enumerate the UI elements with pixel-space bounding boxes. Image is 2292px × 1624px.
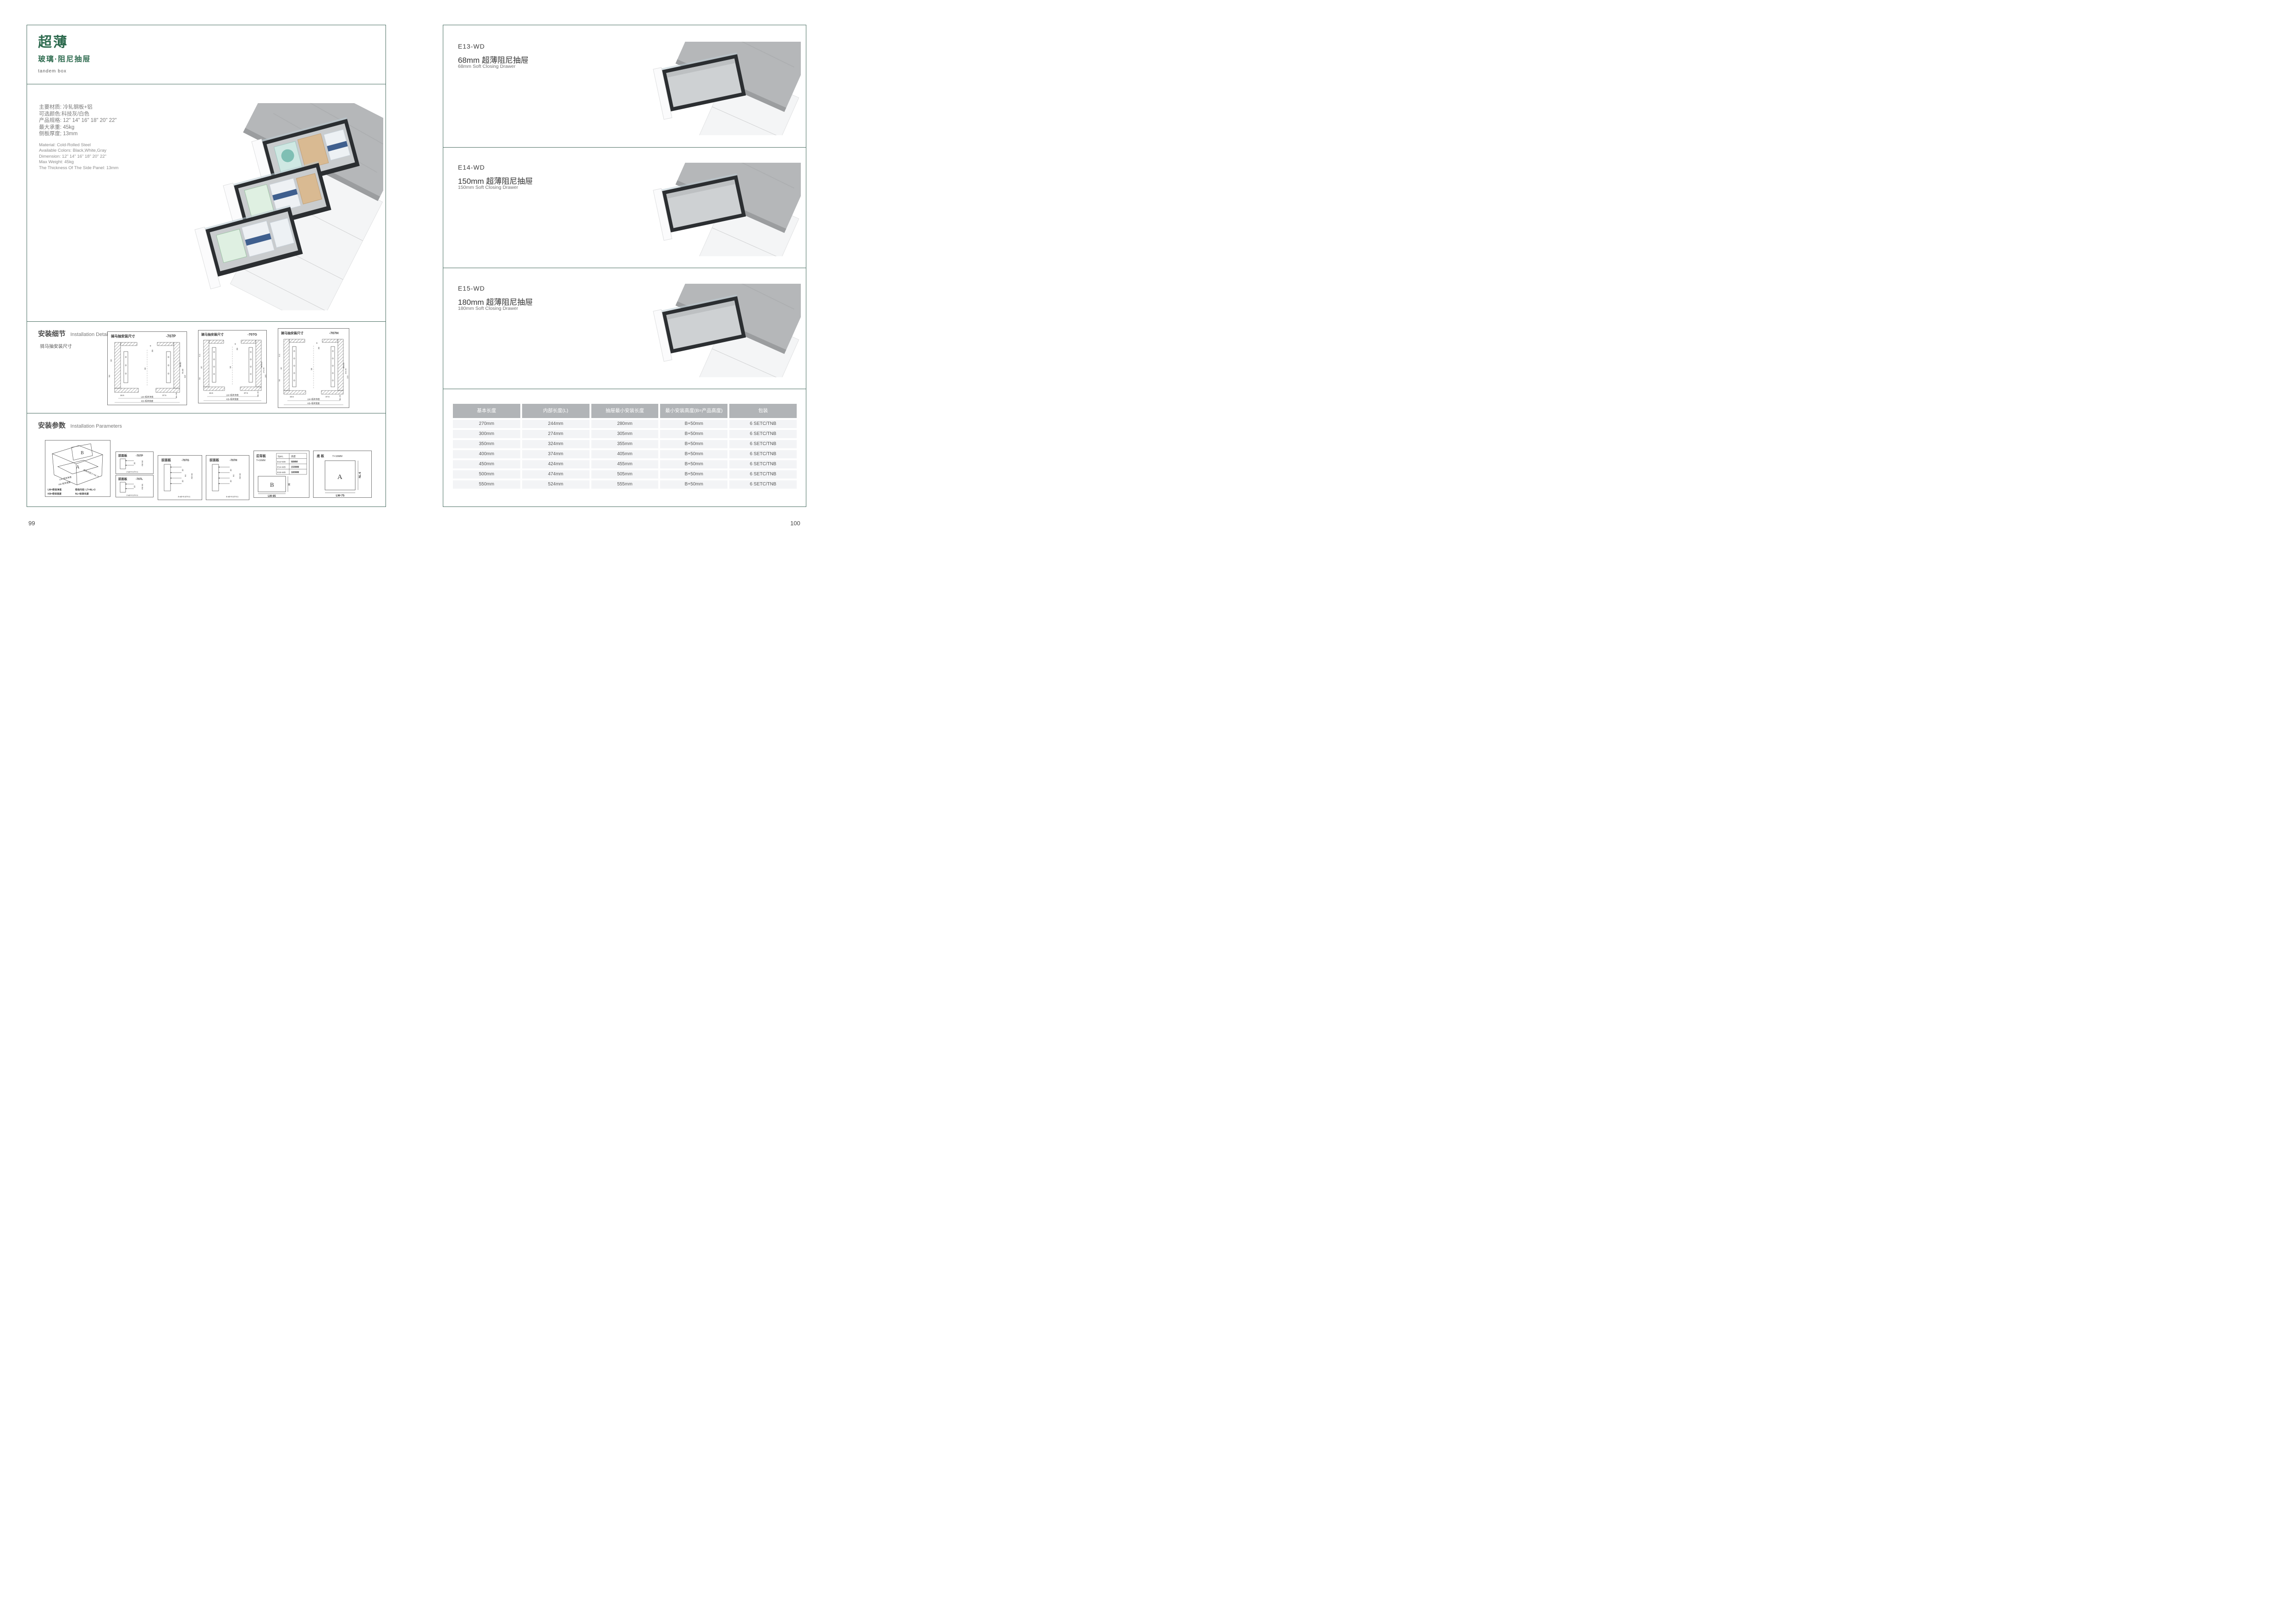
iso-legend: LW=柜体净宽	[48, 488, 61, 491]
dim-label: NL-6	[359, 472, 362, 478]
dim-label: Min 36	[257, 391, 259, 397]
dim-label: Min82	[179, 362, 182, 367]
table-cell: 350mm	[453, 440, 520, 448]
dim-label: 54	[108, 374, 110, 377]
divider	[27, 413, 386, 413]
dim-label: 54	[278, 379, 281, 381]
iso-legend: 柜体内空: LT=NL+3	[75, 488, 95, 491]
dim-label: 32	[133, 462, 136, 464]
dim-label: 16.5	[120, 394, 124, 396]
diagram-model: -707P	[166, 334, 176, 338]
dim-label: 32	[110, 359, 112, 362]
dim-label: LW=柜体净宽	[141, 396, 154, 399]
page-subtitle: 玻璃·阻尼抽屉	[38, 53, 91, 64]
dim-label: 54	[198, 377, 201, 380]
dim-label: 37.5	[325, 396, 330, 398]
hole-note: 4-ø2+0.2/-0.1	[226, 495, 239, 498]
details-heading-cn: 安装细节	[38, 330, 66, 338]
table-cell: B+50mm	[660, 420, 727, 428]
product-model-e14: E14-WD	[458, 164, 485, 171]
spec-cell: 180MM	[291, 471, 299, 474]
left-page: 超薄 玻璃·阻尼抽屉 tandem box 主要材质: 冷轧钢板+铝 可选颜色:…	[27, 25, 386, 507]
diagram-model: -707G	[248, 332, 257, 336]
column-header: 基本长度	[453, 404, 520, 418]
diagram-title: 骑马抽安装尺寸	[111, 334, 135, 338]
catalog-spread: 超薄 玻璃·阻尼抽屉 tandem box 主要材质: 冷轧钢板+铝 可选颜色:…	[0, 0, 830, 541]
dim-label: 64	[184, 474, 187, 477]
table-cell: B+50mm	[660, 430, 727, 438]
bottom-panel-diagram: 底 板 T=16MM A NL-6 LW-75	[313, 451, 372, 498]
front-panel-707h-diagram: 前面板 -707H 32 64 32 min 54 4-ø2+0.2/-0.1	[206, 455, 249, 500]
divider	[27, 84, 386, 84]
table-cell: 244mm	[522, 420, 590, 428]
table-cell: 455mm	[591, 460, 659, 468]
column-header: 抽屉最小安装长度	[591, 404, 659, 418]
specs-cn: 主要材质: 冷轧钢板+铝 可选颜色:科技灰/白色 产品规格: 12" 14" 1…	[39, 104, 117, 138]
table-cell: 400mm	[453, 450, 520, 458]
iso-legend: NL=标准长度	[75, 492, 89, 495]
divider	[443, 268, 806, 268]
dim-label: 6.4	[278, 354, 281, 357]
table-cell: 374mm	[522, 450, 590, 458]
dim-label: 32	[182, 469, 184, 471]
table-cell: 450mm	[453, 460, 520, 468]
dim-label: 16	[144, 367, 146, 370]
spec-cell: E13-WD	[277, 461, 286, 463]
dim-label: 16	[229, 366, 231, 369]
spec-line: Dimension: 12" 14" 16" 18" 20" 22"	[39, 154, 118, 160]
dim-label: 32	[200, 366, 203, 369]
dim-label: 37.5	[162, 394, 166, 396]
product-title-en: 180mm Soft Closing Drawer	[458, 306, 518, 311]
product-photo-drawers	[179, 103, 383, 310]
dim-label: 6.4	[198, 354, 201, 357]
dim-label: 20	[318, 347, 320, 349]
page-title: 超薄	[38, 31, 68, 51]
dim-label: min 54	[141, 460, 143, 466]
table-cell: 355mm	[591, 440, 659, 448]
table-cell: B+50mm	[660, 480, 727, 489]
table-cell: 6 SETC/TNB	[729, 420, 797, 428]
hole-note: 2-ø2+0.2/-0.1	[127, 494, 138, 496]
dim-label: 91.50	[182, 369, 184, 374]
dim-label: 32	[230, 480, 232, 482]
dim-label: Min 36	[339, 395, 341, 401]
page-number-left: 99	[28, 520, 35, 527]
hole-note: 2-ø2+0.2/-0.1	[127, 471, 138, 473]
params-heading-en: Installation Parameters	[70, 424, 122, 429]
front-panel-707l-diagram: 前面板 -707L 32 min 54 2-ø2+0.2/-0.1	[116, 475, 154, 497]
dim-label: 201.50	[345, 368, 347, 374]
table-cell: 300mm	[453, 430, 520, 438]
dim-label: KB=柜体宽度	[308, 402, 320, 405]
table-cell: 280mm	[591, 420, 659, 428]
spec-col-header: 高度	[291, 455, 296, 458]
dim-label: LW-75	[336, 494, 344, 497]
panel-model: -707G	[182, 459, 189, 462]
front-panel-707g-diagram: 前面板 -707G 32 64 32 min 54 4-ø2+0.2/-0.1	[158, 455, 202, 500]
table-cell: B+50mm	[660, 460, 727, 468]
spec-line: 最大承重: 45kg	[39, 124, 117, 131]
panel-title: 前面板	[118, 477, 127, 481]
back-panel-diagram: 后背板 T=16MM Spec. 高度 E13-WD 68MM E14-WD 1…	[253, 451, 309, 498]
diagram-title: 骑马抽安装尺寸	[281, 331, 303, 335]
spec-cell: 68MM	[291, 461, 298, 463]
table-cell: 405mm	[591, 450, 659, 458]
table-cell: 6 SETC/TNB	[729, 480, 797, 489]
product-photo-e13	[636, 42, 801, 135]
product-photo-e14	[636, 163, 801, 256]
column-header: 内部长度(L)	[522, 404, 590, 418]
table-cell: 6 SETC/TNB	[729, 450, 797, 458]
dim-label: 64	[232, 474, 235, 477]
table-cell: 500mm	[453, 470, 520, 479]
product-model-e13: E13-WD	[458, 43, 485, 50]
dim-label: min 54	[141, 484, 143, 490]
dim-label: LW-85	[268, 495, 276, 498]
dim-label: 113	[184, 375, 186, 378]
table-cell: 305mm	[591, 430, 659, 438]
installation-diagram-707p: 骑马抽安装尺寸 -707P 16 9 20 32 54 16.5 37.5 Mi…	[107, 331, 187, 405]
spec-line: Max Weight: 45kg	[39, 160, 118, 165]
dim-label: KB=柜体宽度	[226, 398, 239, 401]
table-cell: 424mm	[522, 460, 590, 468]
dim-label: Min192	[342, 362, 345, 369]
panel-title: 前面板	[209, 458, 220, 462]
dim-label: 37.5	[244, 392, 248, 394]
diagram-title: 骑马抽安装尺寸	[201, 332, 224, 336]
spec-line: 侧板厚度; 13mm	[39, 131, 117, 138]
dim-label: 16.5	[209, 392, 213, 394]
table-cell: 550mm	[453, 480, 520, 489]
column-header: 最小安装高度(B=产品高度)	[660, 404, 727, 418]
product-model-e15: E15-WD	[458, 285, 485, 292]
front-panel-707p-diagram: 前面板 -707P 32 min 54 2-ø2+0.2/-0.1	[116, 451, 154, 474]
spec-line: The Thickness Of The Side Panel: 13mm	[39, 165, 118, 171]
panel-letter: B	[270, 481, 274, 488]
table-cell: B+50mm	[660, 470, 727, 479]
panel-model: -707P	[136, 455, 143, 457]
spec-cell: 150MM	[291, 466, 299, 469]
table-cell: B+50mm	[660, 440, 727, 448]
panel-title: 前面板	[161, 458, 171, 462]
spec-table-header: 基本长度 内部长度(L) 抽屉最小安装长度 最小安装高度(B=产品高度) 包装	[453, 404, 797, 418]
dim-label: 32	[182, 480, 184, 482]
panel-letter-b: B	[81, 451, 84, 456]
params-iso-diagram: B A LW=柜体净宽 KB=柜体宽度 柜体内空LT=NL+3 LW=柜体净宽 …	[45, 440, 110, 497]
table-cell: 524mm	[522, 480, 590, 489]
table-cell: 6 SETC/TNB	[729, 470, 797, 479]
product-title-en: 68mm Soft Closing Drawer	[458, 64, 515, 69]
table-cell: 270mm	[453, 420, 520, 428]
details-subheading: 骑马抽安装尺寸	[40, 342, 72, 349]
dim-label: min 54	[239, 473, 241, 479]
spec-cell: E14-WD	[277, 466, 286, 469]
dim-label: LW=柜体净宽	[307, 398, 320, 401]
dim-label: Min162	[260, 361, 263, 368]
product-title-en: 150mm Soft Closing Drawer	[458, 185, 518, 190]
spec-cell: E15-WD	[277, 471, 286, 474]
table-cell: 324mm	[522, 440, 590, 448]
panel-title: 前面板	[118, 453, 127, 457]
panel-model: -707H	[230, 459, 237, 462]
panel-letter-a: A	[76, 465, 80, 470]
table-cell: 505mm	[591, 470, 659, 479]
dim-label: 20	[236, 347, 238, 350]
iso-legend: KB=柜体宽度	[48, 492, 62, 495]
table-cell: 555mm	[591, 480, 659, 489]
product-photo-e15	[636, 284, 801, 377]
spec-line: 可选颜色:科技灰/白色	[39, 111, 117, 118]
divider	[27, 321, 386, 322]
dim-label: min 54	[191, 473, 193, 479]
dim-label: 225	[347, 375, 349, 379]
params-heading: 安装参数 Installation Parameters	[38, 420, 122, 430]
details-heading: 安装细节 Installation Details	[38, 329, 111, 338]
dim-label: KB=柜体宽度	[141, 400, 154, 403]
divider	[443, 389, 806, 389]
table-cell: 6 SETC/TNB	[729, 460, 797, 468]
table-cell: 6 SETC/TNB	[729, 440, 797, 448]
dim-label: 32	[230, 469, 232, 471]
table-cell: 274mm	[522, 430, 590, 438]
panel-model: -707L	[136, 478, 143, 481]
spec-line: Material: Cold-Rolled Steel	[39, 143, 118, 148]
column-header: 包装	[729, 404, 797, 418]
panel-thickness: T=16MM	[256, 459, 265, 462]
divider	[443, 147, 806, 148]
page-subtitle-en: tandem box	[38, 69, 66, 74]
panel-title: 底 板	[317, 454, 325, 458]
page-number-right: 100	[790, 520, 800, 527]
spec-col-header: Spec.	[278, 456, 284, 458]
spec-table-body: 270mm 244mm 280mm B+50mm 6 SETC/TNB 300m…	[453, 420, 797, 489]
spec-line: Available Colors: Black,White,Gray	[39, 148, 118, 154]
installation-diagram-707h: 骑马抽安装尺寸 -707H 16 9 20 6.4 32	[278, 328, 349, 408]
dim-label: Min 36	[175, 392, 177, 398]
dim-label: 16	[310, 368, 313, 370]
dim-label: 32	[133, 485, 136, 488]
dim-label: H	[288, 484, 291, 485]
dim-label: 171.50	[263, 367, 265, 373]
details-heading-en: Installation Details	[70, 332, 111, 337]
hole-note: 4-ø2+0.2/-0.1	[178, 495, 191, 498]
dim-label: 32	[280, 367, 282, 369]
dim-label: 195	[264, 374, 267, 378]
right-page: E13-WD 68mm 超薄阻尼抽屉 68mm Soft Closing Dra…	[443, 25, 806, 507]
specs-en: Material: Cold-Rolled Steel Available Co…	[39, 143, 118, 171]
table-cell: B+50mm	[660, 450, 727, 458]
panel-letter: A	[337, 473, 342, 481]
params-heading-cn: 安装参数	[38, 422, 66, 429]
spec-line: 主要材质: 冷轧钢板+铝	[39, 104, 117, 111]
table-cell: 474mm	[522, 470, 590, 479]
spec-line: 产品规格: 12" 14" 16" 18" 20" 22"	[39, 117, 117, 124]
panel-title: 后背板	[256, 454, 266, 458]
dim-label: 16.5	[290, 396, 294, 398]
panel-thickness: T=16MM	[332, 455, 342, 458]
dim-label: 20	[151, 349, 154, 352]
diagram-model: -707H	[329, 331, 338, 335]
dim-label: LW=柜体净宽	[226, 394, 239, 397]
table-cell: 6 SETC/TNB	[729, 430, 797, 438]
installation-diagram-707g: 骑马抽安装尺寸 -707G 16 9 20 6.4 32 54 1	[198, 330, 267, 403]
